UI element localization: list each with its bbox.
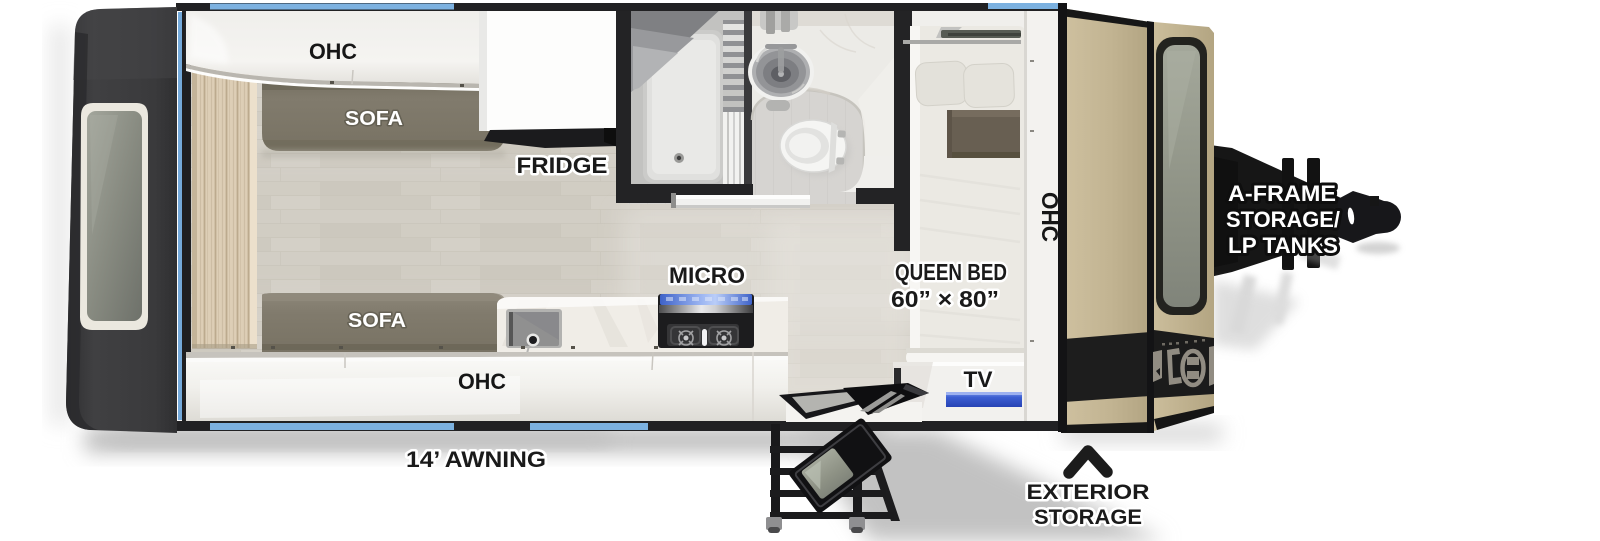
svg-text:A-FRAME: A-FRAME (1228, 181, 1336, 206)
svg-text:OHC: OHC (309, 39, 357, 64)
svg-text:MICRO: MICRO (669, 263, 745, 288)
svg-text:STORAGE/: STORAGE/ (1226, 207, 1340, 232)
svg-text:EXTERIOR: EXTERIOR (1027, 481, 1150, 504)
svg-text:OHC: OHC (458, 369, 506, 394)
svg-text:STORAGE: STORAGE (1034, 506, 1142, 529)
svg-text:SOFA: SOFA (348, 310, 406, 332)
svg-text:60” × 80”: 60” × 80” (891, 286, 999, 312)
svg-text:14’ AWNING: 14’ AWNING (406, 447, 546, 472)
svg-text:FRIDGE: FRIDGE (517, 153, 608, 178)
svg-text:TV: TV (964, 367, 993, 392)
svg-text:SOFA: SOFA (345, 108, 403, 130)
svg-text:LP TANKS: LP TANKS (1228, 233, 1338, 258)
svg-text:QUEEN BED: QUEEN BED (895, 259, 1007, 285)
